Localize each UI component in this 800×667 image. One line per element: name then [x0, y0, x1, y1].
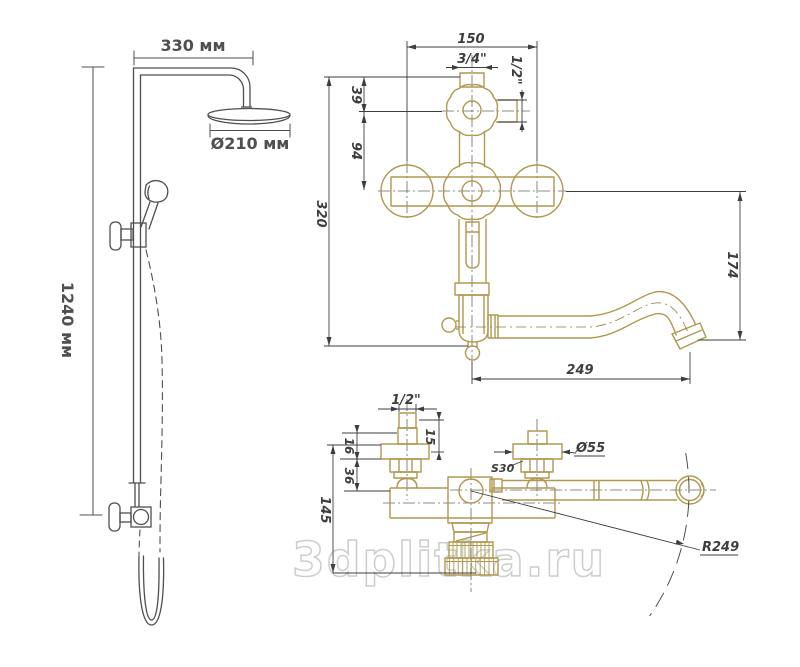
dim-174: 174 — [724, 251, 739, 278]
dim-1240 — [80, 67, 104, 515]
shower-hose — [139, 250, 164, 625]
dim-width-150: 150 — [457, 32, 484, 47]
dim-145: 145 — [317, 496, 332, 523]
dim-15: 15 — [423, 429, 437, 446]
spout-block — [448, 477, 492, 523]
hand-shower — [110, 181, 168, 250]
label-diameter-210: Ø210 мм — [211, 134, 290, 153]
left-wall-fitting — [381, 413, 429, 488]
dim-thread-12-top: 1/2" — [391, 393, 421, 408]
dim-39: 39 — [348, 86, 363, 104]
bottom-valve — [109, 503, 151, 531]
dim-r249: R249 — [702, 540, 739, 555]
label-height-1240: 1240 мм — [58, 282, 77, 358]
dim-320: 320 — [313, 200, 328, 227]
dim-16: 16 — [342, 438, 356, 455]
shower-arm-inner — [141, 75, 244, 98]
rain-shower-head — [208, 109, 290, 125]
finial-ball — [466, 346, 480, 360]
dim-36: 36 — [342, 468, 356, 485]
dim-thread-12-front: 1/2" — [508, 55, 523, 85]
right-wall-fitting — [513, 431, 562, 488]
dim-d55: Ø55 — [575, 441, 605, 456]
front-dimensions — [324, 41, 746, 384]
swan-spout — [488, 292, 706, 349]
faucet-front-view — [381, 73, 706, 360]
dim-249: 249 — [566, 363, 593, 378]
technical-drawing: 330 мм Ø210 мм 1240 мм — [0, 0, 800, 667]
dim-94: 94 — [348, 142, 363, 160]
label-width-330: 330 мм — [160, 36, 225, 55]
dim-s30: S30 — [491, 462, 515, 475]
ball-handle — [442, 318, 456, 332]
shower-arm-outer — [134, 68, 251, 98]
dim-thread-34: 3/4" — [457, 52, 487, 67]
